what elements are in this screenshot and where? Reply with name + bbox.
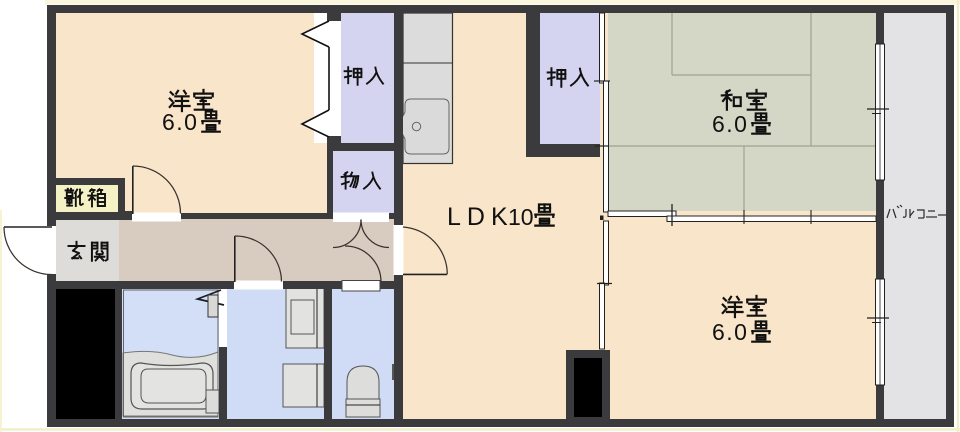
- svg-text:6.0: 6.0: [712, 111, 748, 137]
- svg-text:6.0: 6.0: [712, 319, 748, 345]
- svg-text:6.0: 6.0: [162, 109, 198, 135]
- svg-text:10: 10: [508, 204, 534, 230]
- svg-text:LDK: LDK: [447, 203, 514, 231]
